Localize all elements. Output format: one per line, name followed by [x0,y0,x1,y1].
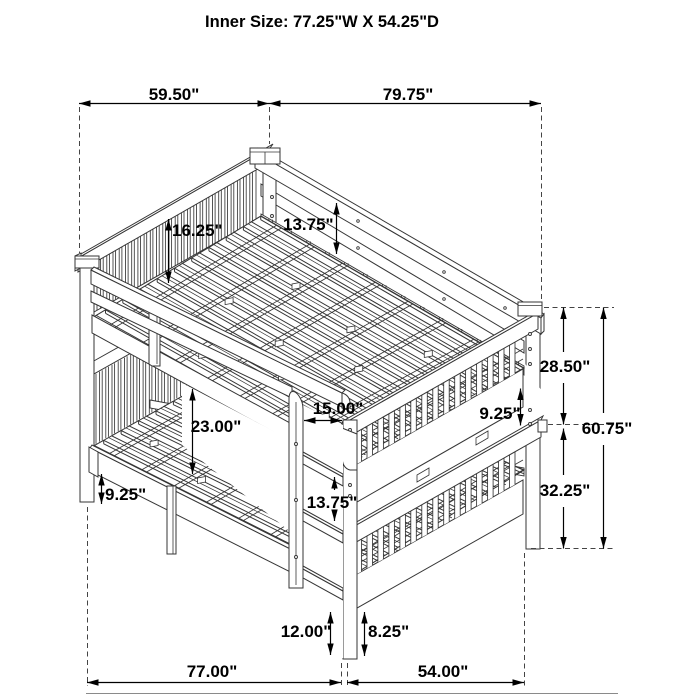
svg-text:9.25": 9.25" [479,404,520,423]
svg-text:28.50": 28.50" [540,357,591,376]
svg-text:8.25": 8.25" [368,622,409,641]
svg-text:32.25": 32.25" [540,481,591,500]
svg-text:12.00": 12.00" [281,622,332,641]
svg-text:54.00": 54.00" [418,662,469,681]
svg-text:9.25": 9.25" [105,485,146,504]
svg-text:23.00": 23.00" [191,417,242,436]
svg-text:60.75": 60.75" [582,419,633,438]
svg-text:Inner Size: 77.25"W X 54.25"D: Inner Size: 77.25"W X 54.25"D [205,13,439,31]
svg-text:77.00": 77.00" [187,662,238,681]
svg-text:16.25": 16.25" [172,221,223,240]
svg-text:13.75": 13.75" [307,493,358,512]
svg-text:79.75": 79.75" [383,85,434,104]
svg-text:59.50": 59.50" [149,85,200,104]
svg-text:13.75": 13.75" [283,215,334,234]
svg-text:15.00": 15.00" [313,399,364,418]
